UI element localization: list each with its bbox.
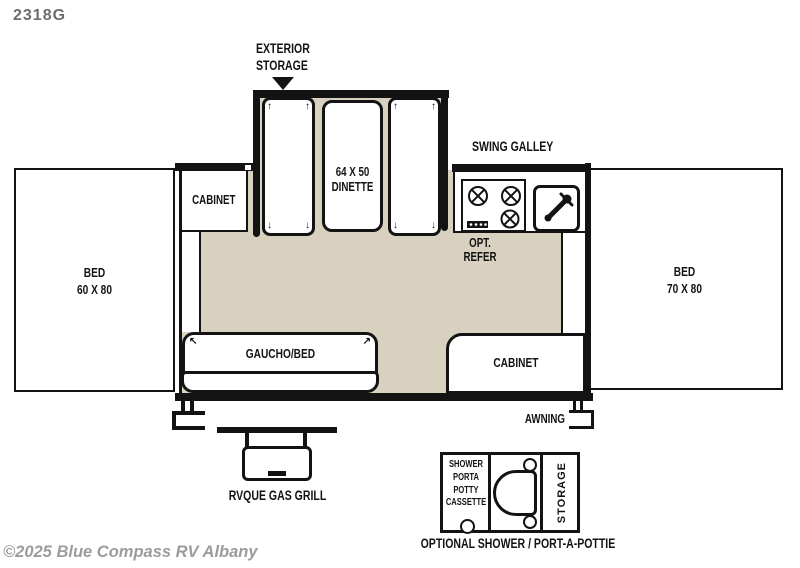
wall-latch-notch [245, 165, 251, 170]
gaucho-label: GAUCHO/BED [245, 346, 314, 362]
opt-refer-label: OPT. REFER [455, 236, 505, 264]
fold-arrow-icon: ↓ [305, 221, 310, 231]
grill-label: RVQUE GAS GRILL [213, 488, 342, 505]
cabinet-bottom-label: CABINET [493, 355, 538, 371]
body-bottom-wall [175, 393, 593, 401]
dinette-bench-left: ↑ ↑ ↓ ↓ [262, 97, 315, 236]
optional-shower-label: OPTIONAL SHOWER / PORT-A-POTTIE [421, 536, 610, 553]
stove-burners-icon [463, 181, 524, 230]
slideout-left-wall [253, 90, 260, 237]
toilet-icon [493, 470, 537, 516]
body-right-wall [585, 163, 591, 396]
storage-section: STORAGE [543, 455, 580, 530]
grill-leg [245, 433, 249, 447]
gaucho-bed-seat [181, 371, 379, 393]
dinette-label: 64 X 50 DINETTE [331, 165, 374, 195]
shower-potty-unit: SHOWER PORTA POTTY CASSETTE STORAGE [440, 452, 580, 533]
fold-arrow-icon: ↗ [363, 337, 371, 347]
dealer-watermark: ©2025 Blue Compass RV Albany [3, 543, 258, 562]
exterior-storage-label: EXTERIOR STORAGE [256, 40, 310, 74]
slideout-right-wall [441, 90, 448, 231]
grill-mount-bar [217, 427, 337, 433]
vent-circle [523, 458, 537, 472]
hitch-bracket [172, 411, 205, 430]
fold-arrow-icon: ↑ [267, 102, 272, 112]
shower-potty-label: SHOWER PORTA POTTY CASSETTE [445, 458, 487, 509]
cabinet-top: CABINET [180, 169, 248, 232]
bed-left-platform: BED 60 X 80 [14, 168, 175, 392]
grill-handle [268, 471, 286, 476]
cabinet-top-label: CABINET [192, 193, 235, 209]
grill-leg [303, 433, 307, 447]
vent-circle [460, 519, 475, 534]
storage-vertical-label: STORAGE [556, 462, 568, 523]
galley-top-wall [452, 164, 591, 172]
fold-arrow-icon: ↑ [393, 102, 398, 112]
unit-divider [488, 455, 491, 530]
fold-arrow-icon: ↑ [305, 102, 310, 112]
fold-arrow-icon: ↑ [431, 102, 436, 112]
dinette-bench-right: ↑ ↑ ↓ ↓ [388, 97, 441, 236]
exterior-storage-pointer-icon [272, 77, 294, 90]
sink [533, 185, 580, 232]
fold-arrow-icon: ↓ [431, 221, 436, 231]
slideout-top-wall [255, 90, 449, 98]
sink-faucet-icon [536, 188, 577, 229]
bed-right-label: BED 70 X 80 [609, 263, 760, 297]
grill-box [242, 446, 312, 481]
cabinet-bottom: CABINET [446, 333, 586, 394]
bed-left-label: BED 60 X 80 [33, 264, 155, 298]
fold-arrow-icon: ↓ [267, 221, 272, 231]
fold-arrow-icon: ↖ [189, 337, 197, 347]
bed-right-platform: BED 70 X 80 [586, 168, 783, 390]
vent-circle [523, 515, 537, 529]
swing-galley-label: SWING GALLEY [472, 139, 553, 156]
fold-arrow-icon: ↓ [393, 221, 398, 231]
right-counter-strip [561, 231, 586, 334]
body-left-wall [179, 166, 182, 396]
awning-bracket [569, 410, 594, 429]
left-counter-strip [181, 231, 201, 332]
stove [461, 179, 526, 232]
floorplan-canvas: 2318G BED 60 X 80 BED 70 X 80 CABINET [0, 0, 800, 568]
dinette-table: 64 X 50 DINETTE [322, 100, 383, 232]
model-number: 2318G [13, 7, 66, 25]
awning-label: AWNING [507, 412, 566, 428]
